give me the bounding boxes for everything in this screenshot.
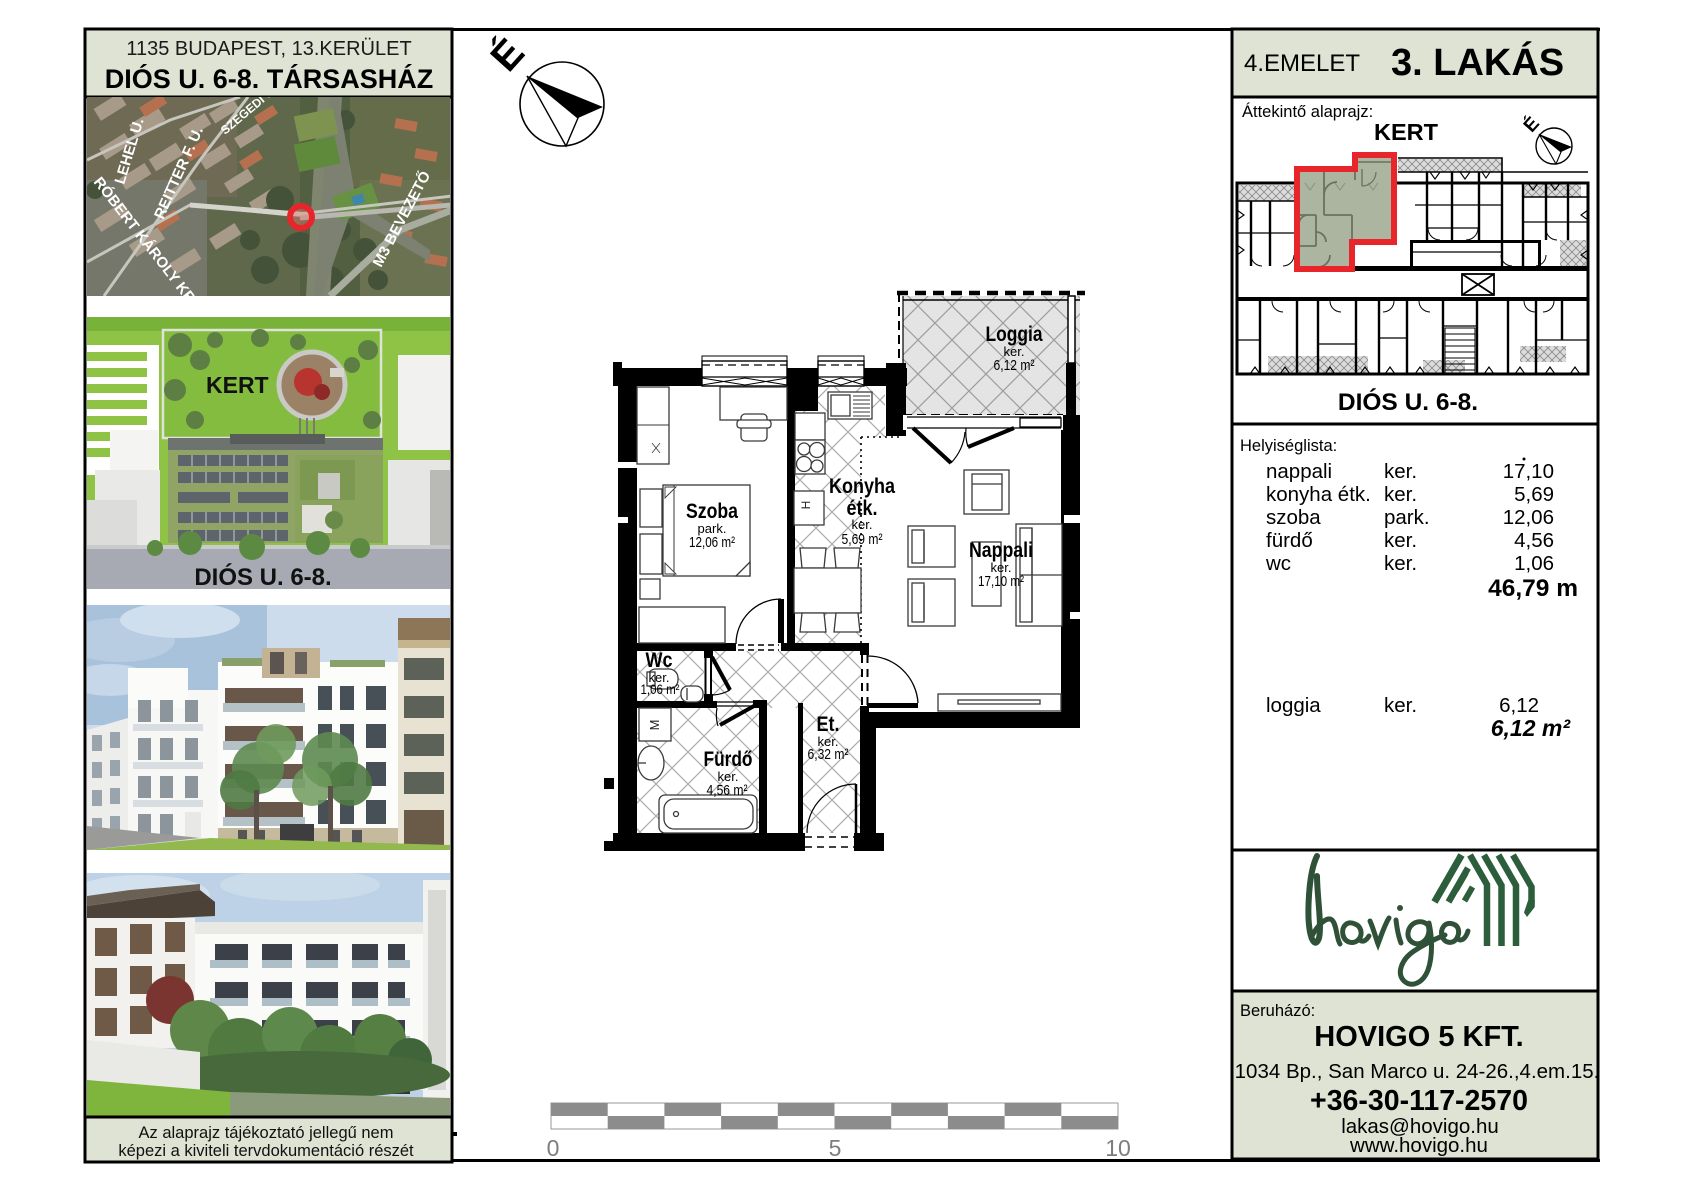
svg-text:ker.: ker. — [852, 517, 873, 532]
svg-text:6,12 m²: 6,12 m² — [1491, 715, 1572, 741]
svg-text:4,56: 4,56 — [1514, 529, 1554, 552]
svg-text:ker.: ker. — [1384, 483, 1417, 506]
svg-text:5: 5 — [829, 1135, 842, 1161]
svg-text:wc: wc — [1265, 552, 1291, 575]
svg-text:1135 BUDAPEST, 13.KERÜLET: 1135 BUDAPEST, 13.KERÜLET — [126, 38, 411, 60]
svg-text:17,10 m²: 17,10 m² — [978, 573, 1024, 590]
svg-text:ker.: ker. — [1384, 552, 1417, 575]
svg-text:ker.: ker. — [1384, 529, 1417, 552]
svg-text:Et.: Et. — [817, 713, 840, 736]
svg-text:1,06 m²: 1,06 m² — [641, 681, 680, 697]
svg-text:ker.: ker. — [1384, 460, 1417, 483]
svg-text:KERT: KERT — [206, 372, 269, 398]
svg-text:Helyiséglista:: Helyiséglista: — [1240, 437, 1337, 455]
svg-text:Konyha: Konyha — [829, 475, 895, 498]
svg-text:szoba: szoba — [1266, 506, 1321, 529]
svg-text:DIÓS U. 6-8. TÁRSASHÁZ: DIÓS U. 6-8. TÁRSASHÁZ — [105, 63, 434, 94]
svg-text:6,32 m²: 6,32 m² — [808, 746, 849, 763]
svg-text:3. LAKÁS: 3. LAKÁS — [1391, 40, 1564, 84]
svg-text:H: H — [799, 501, 813, 510]
svg-text:Nappali: Nappali — [969, 539, 1033, 562]
svg-text:12,06: 12,06 — [1503, 506, 1554, 529]
svg-text:DIÓS U. 6-8.: DIÓS U. 6-8. — [1338, 388, 1478, 416]
svg-text:park.: park. — [1384, 506, 1430, 529]
svg-text:konyha étk.: konyha étk. — [1266, 483, 1371, 506]
svg-text:ker.: ker. — [1384, 694, 1417, 717]
svg-text:0: 0 — [547, 1135, 560, 1161]
svg-text:HOVIGO 5 KFT.: HOVIGO 5 KFT. — [1314, 1021, 1523, 1053]
svg-text:5,69 m²: 5,69 m² — [842, 531, 883, 548]
svg-text:Beruházó:: Beruházó: — [1240, 1002, 1315, 1020]
svg-text:fürdő: fürdő — [1266, 529, 1313, 552]
svg-text:6,12: 6,12 — [1499, 694, 1539, 717]
svg-text:46,79 m: 46,79 m — [1488, 575, 1578, 602]
svg-text:10: 10 — [1105, 1135, 1131, 1161]
svg-text:Szoba: Szoba — [686, 500, 738, 523]
svg-text:6,12 m²: 6,12 m² — [994, 357, 1035, 374]
svg-text:képezi a kiviteli tervdokument: képezi a kiviteli tervdokumentáció részé… — [118, 1142, 414, 1160]
svg-text:Áttekintő alaprajz:: Áttekintő alaprajz: — [1242, 102, 1373, 121]
svg-text:4,56 m²: 4,56 m² — [707, 782, 748, 799]
svg-text:+36-30-117-2570: +36-30-117-2570 — [1310, 1085, 1528, 1117]
svg-text:4.EMELET: 4.EMELET — [1244, 50, 1360, 77]
svg-text:nappali: nappali — [1266, 460, 1332, 483]
svg-text:1034 Bp., San Marco u. 24-26.,: 1034 Bp., San Marco u. 24-26.,4.em.15. — [1235, 1060, 1600, 1083]
svg-text:1,06: 1,06 — [1514, 552, 1554, 575]
svg-text:loggia: loggia — [1266, 694, 1321, 717]
svg-text:Az alaprajz tájékoztató jelleg: Az alaprajz tájékoztató jellegű nem — [139, 1124, 394, 1142]
svg-text:Loggia: Loggia — [986, 323, 1043, 346]
svg-text:5,69: 5,69 — [1514, 483, 1554, 506]
svg-text:17,10: 17,10 — [1503, 460, 1554, 483]
svg-text:12,06 m²: 12,06 m² — [689, 534, 735, 551]
svg-text:Wc: Wc — [646, 649, 673, 672]
svg-text:DIÓS U. 6-8.: DIÓS U. 6-8. — [194, 563, 331, 591]
svg-text:M: M — [647, 720, 662, 731]
svg-text:KERT: KERT — [1374, 119, 1439, 145]
svg-text:www.hovigo.hu: www.hovigo.hu — [1349, 1134, 1488, 1157]
svg-text:Fürdő: Fürdő — [704, 748, 753, 771]
